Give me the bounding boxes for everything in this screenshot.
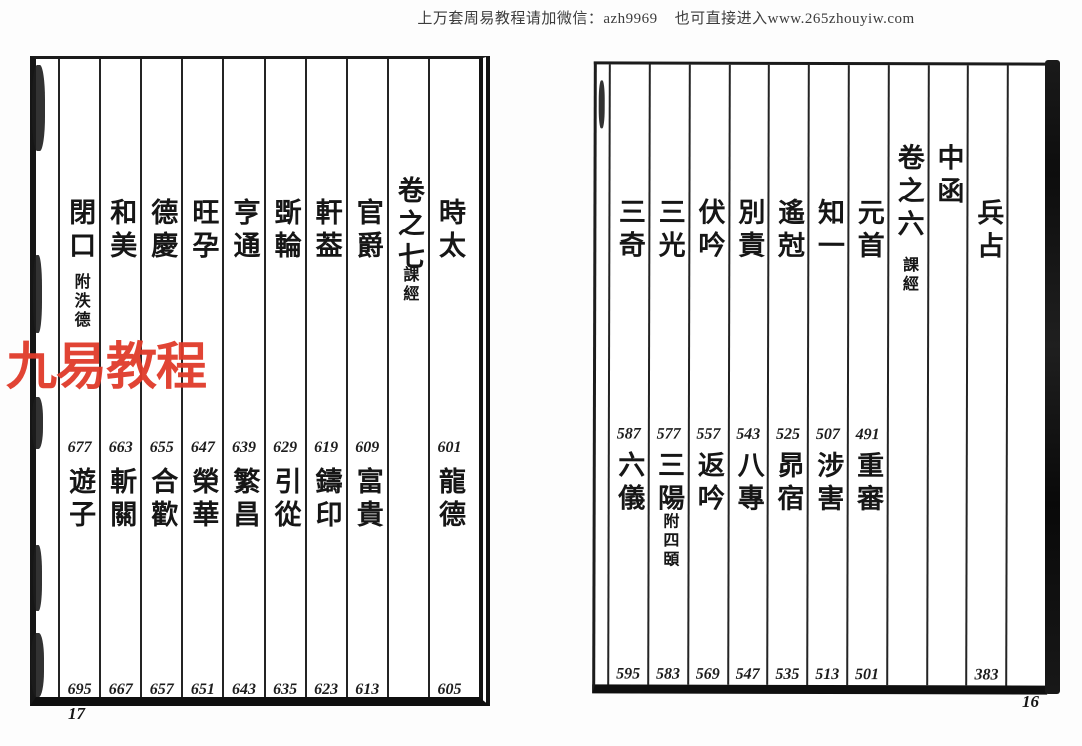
entry-title-mid: 八專	[735, 451, 762, 517]
entry-title-top: 亨通	[230, 198, 257, 264]
right-page: 兵占383中函卷之六課經元首491重審501知一507涉害513遙尅525昴宿5…	[592, 61, 1049, 694]
entry-title-top: 伏吟	[695, 198, 722, 264]
entry-end-page: 513	[808, 666, 846, 684]
toc-column: 三光577三陽附四頣583	[647, 65, 688, 685]
entry-title-top: 斲輪	[272, 198, 299, 264]
entry-title-mid: 涉害	[814, 451, 841, 517]
entry-end-page: 535	[769, 666, 807, 684]
entry-end-page: 623	[307, 681, 346, 699]
entry-title-top: 軒葢	[313, 198, 340, 264]
scanned-book-screenshot: { "header": { "ad_text": "上万套周易教程请加微信：az…	[0, 0, 1082, 746]
entry-title-top: 和美	[107, 198, 134, 264]
entry-end-page: 613	[348, 681, 387, 699]
entry-title-mid: 榮華	[189, 467, 216, 533]
entry-end-page: 569	[689, 666, 727, 684]
entry-title-mid: 返吟	[695, 451, 722, 517]
entry-title-mid: 六儀	[615, 450, 642, 516]
entry-end-page: 635	[266, 681, 305, 699]
toc-column: 遙尅525昴宿535	[767, 65, 808, 685]
entry-end-page: 643	[224, 681, 263, 699]
entry-title-top: 卷之七	[395, 176, 422, 275]
left-folio-number: 17	[68, 704, 85, 724]
entry-end-page: 583	[649, 666, 687, 684]
entry-annotation: 課經	[400, 266, 416, 304]
toc-column: 三奇587六儀595	[607, 64, 648, 684]
scan-artifact	[31, 633, 44, 697]
entry-title-mid: 龍德	[436, 467, 463, 533]
toc-column: 別責543八專547	[727, 65, 768, 685]
entry-title-top: 官爵	[354, 198, 381, 264]
scan-artifact	[33, 255, 42, 333]
right-folio-number: 16	[1022, 692, 1039, 712]
toc-column: 卷之六課經	[886, 65, 927, 685]
entry-start-page: 639	[224, 439, 263, 457]
entry-title-top: 別責	[735, 198, 762, 264]
entry-end-page: 651	[183, 681, 222, 699]
entry-start-page: 557	[690, 426, 728, 444]
toc-column: 官爵609富貴613	[346, 59, 387, 697]
entry-title-top: 知一	[815, 198, 842, 264]
toc-column: 斲輪629引從635	[264, 59, 305, 697]
entry-title-top: 時太	[436, 198, 463, 264]
entry-start-page: 647	[183, 439, 222, 457]
toc-column: 軒葢619鑄印623	[305, 59, 346, 697]
entry-title-top: 遙尅	[775, 198, 802, 264]
entry-title-mid: 鑄印	[313, 467, 340, 533]
header-ad-text: 上万套周易教程请加微信：azh9969 也可直接进入www.265zhouyiw…	[0, 7, 1082, 28]
entry-title-top: 三奇	[616, 197, 643, 263]
entry-title-top: 旺孕	[189, 198, 216, 264]
entry-start-page: 543	[729, 426, 767, 444]
entry-end-page: 501	[848, 666, 886, 684]
entry-title-top: 卷之六	[895, 143, 922, 242]
entry-start-page: 663	[101, 439, 140, 457]
entry-annotation: 附泆德	[72, 273, 88, 330]
entry-title-mid: 重審	[854, 451, 881, 517]
entry-start-page: 491	[849, 426, 887, 444]
entry-start-page: 601	[430, 439, 469, 457]
entry-start-page: 587	[610, 425, 648, 443]
entry-start-page: 655	[142, 439, 181, 457]
entry-title-mid: 三陽	[655, 451, 682, 517]
entry-title-top: 元首	[855, 198, 882, 264]
book-spine-shadow	[1045, 60, 1060, 694]
scan-artifact	[599, 80, 605, 128]
entry-end-page: 547	[729, 666, 767, 684]
entry-start-page: 507	[809, 426, 847, 444]
toc-column: 知一507涉害513	[806, 65, 847, 685]
entry-start-page: 629	[266, 439, 305, 457]
scan-artifact	[33, 545, 42, 611]
toc-column: 元首491重審501	[846, 65, 887, 685]
entry-start-page: 609	[348, 439, 387, 457]
entry-title-mid: 斬關	[107, 467, 134, 533]
entry-end-page: 695	[60, 681, 99, 699]
entry-title-top: 兵占	[974, 198, 1001, 264]
entry-title-top: 三光	[656, 198, 683, 264]
entry-title-mid: 昴宿	[774, 451, 801, 517]
entry-annotation: 附四頣	[660, 513, 676, 570]
toc-column: 兵占383	[966, 65, 1007, 685]
right-page-columns: 兵占383中函卷之六課經元首491重審501知一507涉害513遙尅525昴宿5…	[607, 64, 1047, 685]
toc-column: 伏吟557返吟569	[687, 65, 728, 685]
entry-title-top: 德慶	[148, 198, 175, 264]
entry-start-page: 577	[650, 426, 688, 444]
toc-column: 亨通639繁昌643	[222, 59, 263, 697]
toc-column	[1005, 65, 1046, 685]
entry-start-page: 619	[307, 439, 346, 457]
entry-title-mid: 遊子	[66, 467, 93, 533]
entry-annotation: 課經	[900, 256, 916, 294]
entry-title-mid: 富貴	[354, 467, 381, 533]
entry-start-page: 525	[769, 426, 807, 444]
toc-column: 時太601龍德605	[428, 59, 469, 697]
toc-column: 卷之七課經	[387, 59, 428, 697]
entry-end-page: 383	[968, 666, 1006, 684]
entry-end-page: 605	[430, 681, 469, 699]
entry-end-page: 595	[609, 665, 647, 683]
entry-title-top: 中函	[934, 143, 961, 209]
entry-start-page: 677	[60, 439, 99, 457]
watermark: 九易教程	[6, 341, 206, 392]
entry-title-mid: 繁昌	[230, 467, 257, 533]
entry-end-page: 657	[142, 681, 181, 699]
entry-title-mid: 引從	[272, 467, 299, 533]
scan-artifact	[32, 397, 43, 449]
scan-artifact	[32, 65, 45, 151]
toc-column: 中函	[926, 65, 967, 685]
entry-title-mid: 合歡	[148, 467, 175, 533]
entry-title-top: 閉口	[66, 198, 93, 264]
entry-end-page: 667	[101, 681, 140, 699]
